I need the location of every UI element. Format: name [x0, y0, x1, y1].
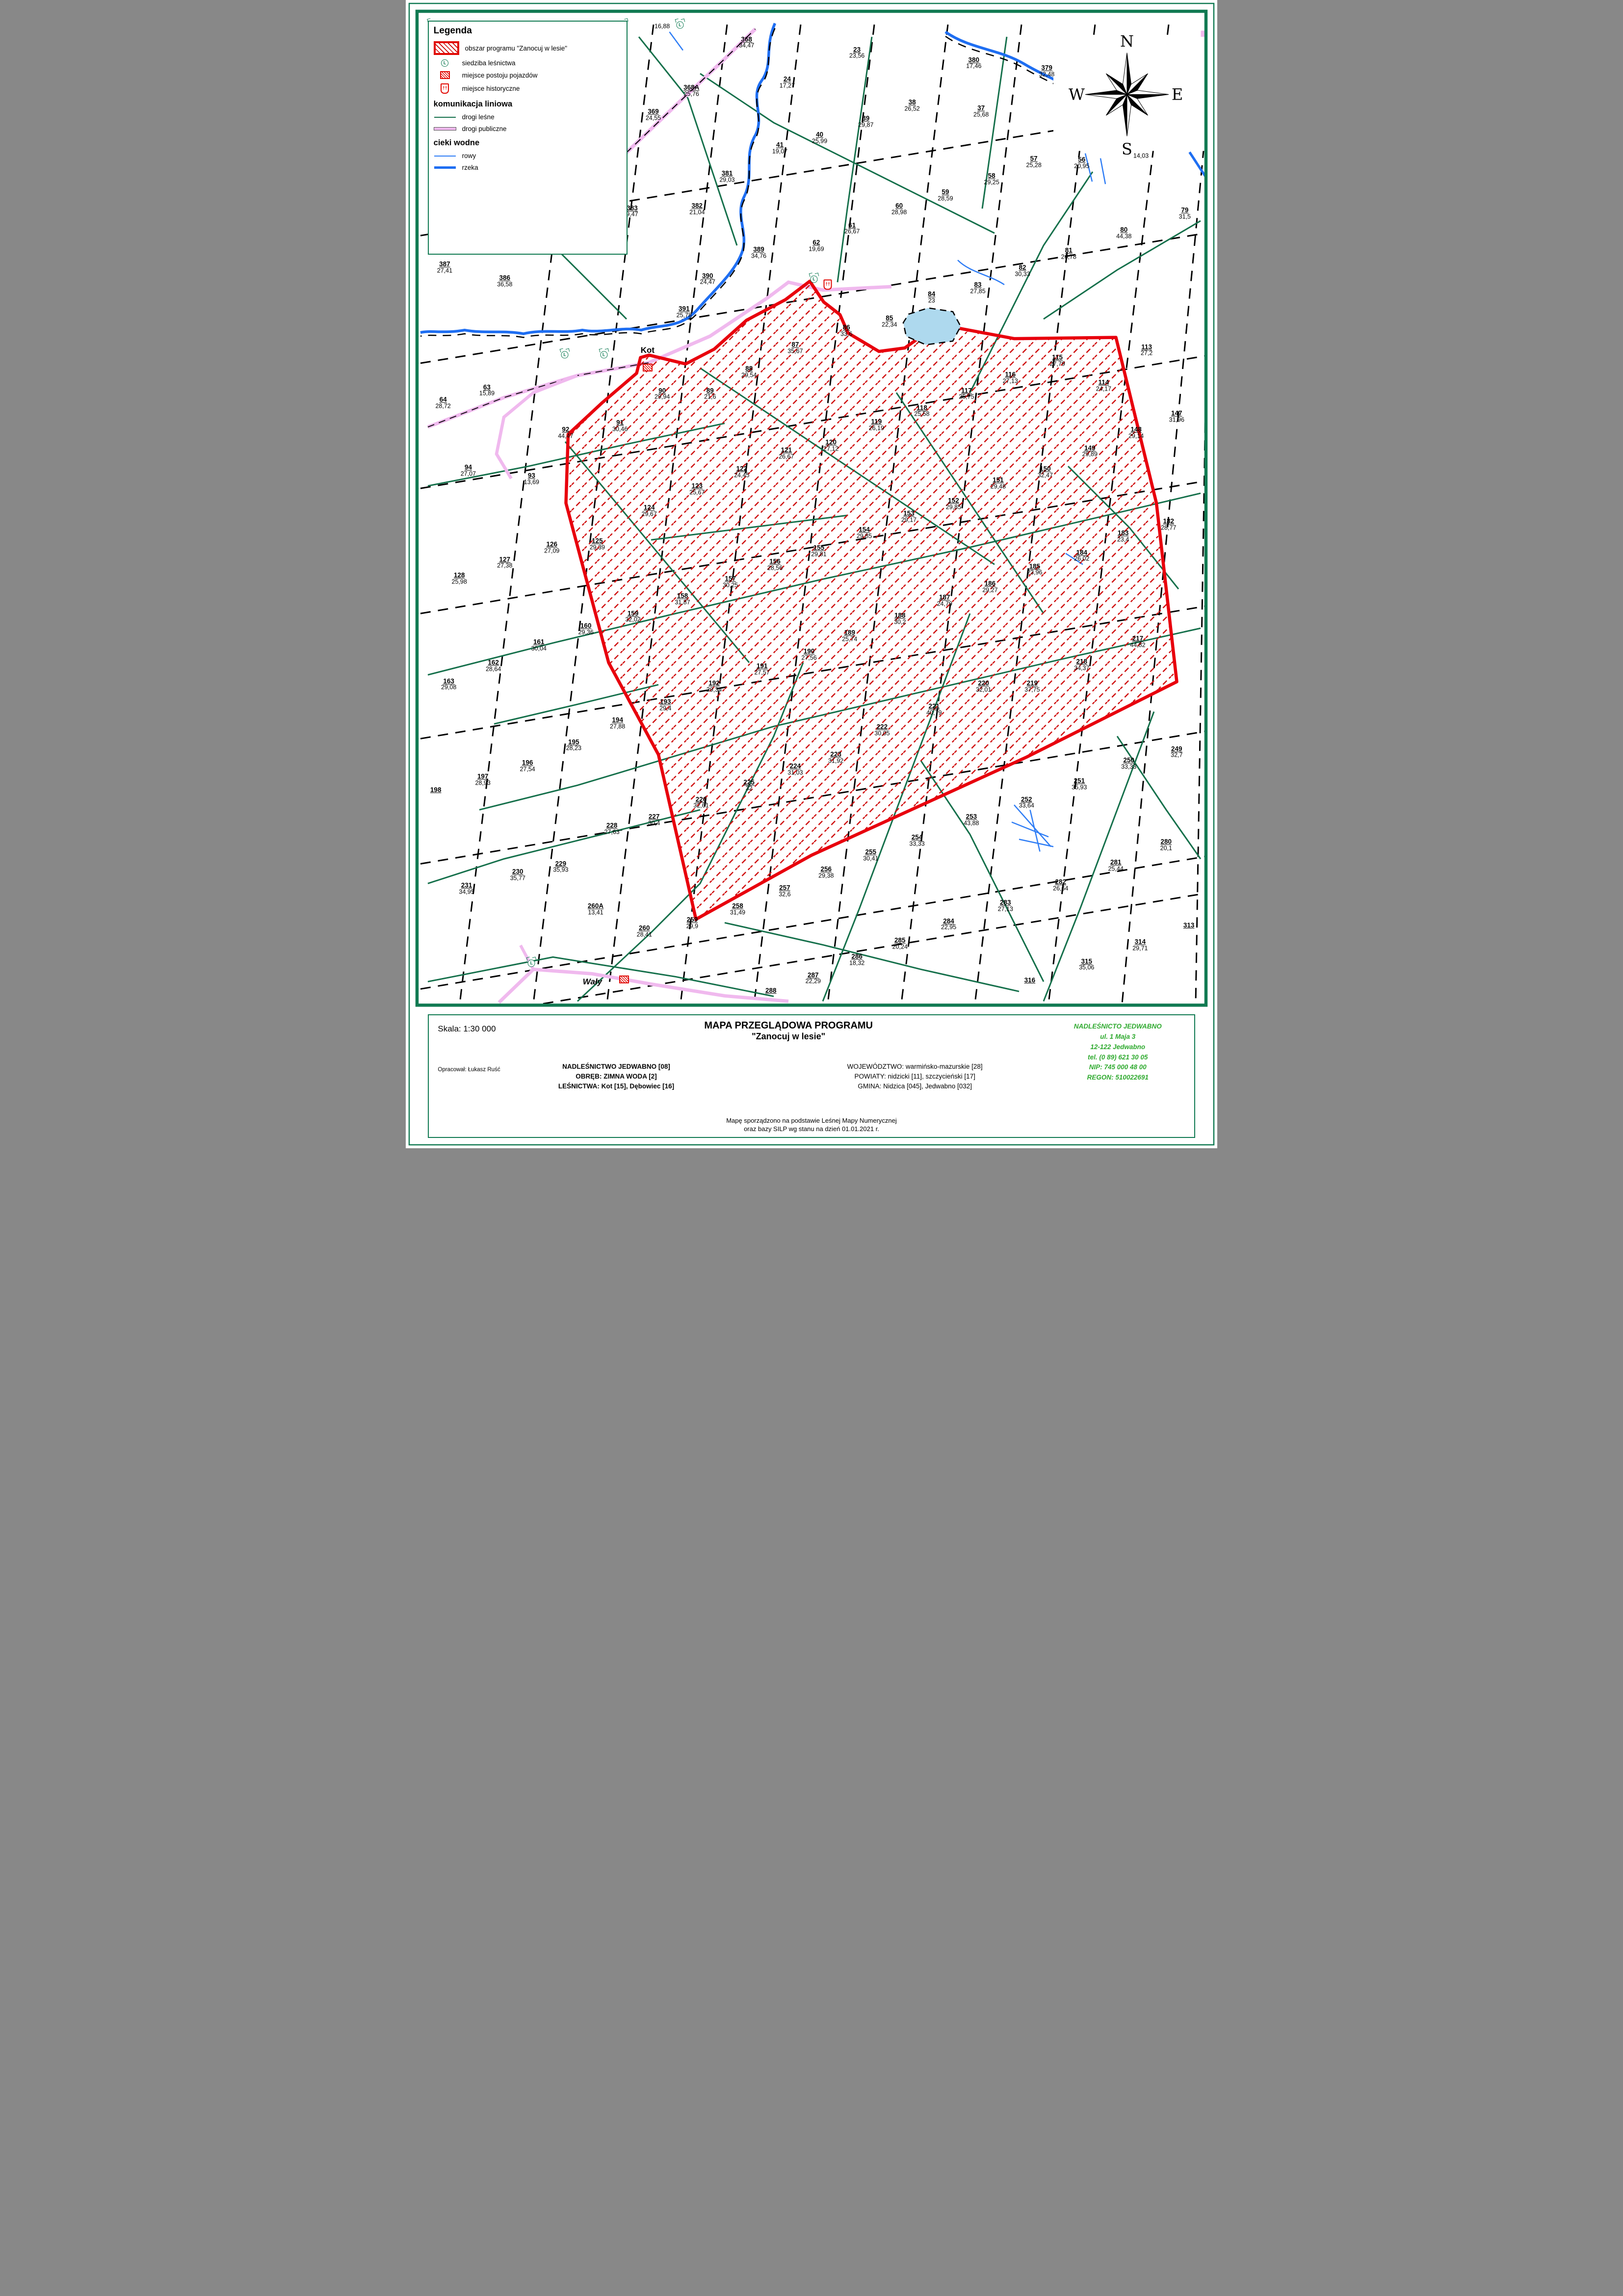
compartment-number: 154 [857, 526, 872, 533]
compartment-area: 32 [743, 786, 755, 792]
compartment-area: 25,58 [914, 411, 929, 418]
compartment-area: 29,67 [642, 511, 657, 518]
compartment-number: 227 [648, 813, 660, 820]
legend-item-ditches: rowy [434, 152, 622, 159]
compartment-area: 31,87 [675, 600, 690, 606]
compartment-area: 31,92 [828, 758, 843, 765]
compartment-label: 11725,75 [959, 387, 974, 400]
compartment-area: 34,76 [751, 253, 766, 259]
compartment-area: 34,37 [1074, 665, 1089, 671]
compartment-label: 18323,4 [1117, 530, 1129, 543]
compartment-area: 34,47 [739, 43, 754, 49]
compartment-label: 36834,47 [739, 36, 754, 49]
compartment-label: 198 [430, 787, 442, 793]
compartment-label: 37932,48 [1039, 65, 1054, 78]
compartment-number: 387 [437, 261, 452, 268]
compartment-area: 24,45 [734, 472, 749, 478]
compartment-label: 16130,04 [531, 639, 547, 652]
forestry-office-icon: L [600, 351, 607, 359]
compartment-number: 125 [590, 538, 605, 545]
compartment-label: 22935,93 [553, 860, 568, 873]
compartment-area: 29,17 [901, 517, 916, 524]
footer-panel: Skala: 1:30 000 Opracował: Łukasz Ruść M… [428, 1014, 1196, 1138]
compartment-area: 32,7 [1171, 752, 1182, 759]
compartment-number: 116 [1003, 371, 1018, 378]
compartment-area: 23,56 [849, 53, 864, 59]
compartment-area: 27,54 [520, 766, 535, 772]
compartment-area: 32,02 [625, 617, 640, 623]
compartment-number: 259 [686, 917, 698, 924]
compartment-area: 25,67 [689, 489, 705, 496]
address-city: 12-122 Jedwabno [1049, 1042, 1187, 1053]
forestry-office-icon: L [677, 22, 684, 29]
compartment-number: 250 [1121, 757, 1136, 764]
compartment-number: 124 [642, 504, 657, 511]
compartment-label: 8230,33 [1015, 264, 1030, 278]
compartment-area: 28,59 [938, 195, 953, 202]
source-note-line2: oraz bazy SILP wg stanu na dzień 01.01.2… [620, 1125, 1003, 1134]
compartment-area: 26,02 [1074, 556, 1089, 562]
compartment-area: 30,25 [723, 582, 738, 589]
compartment-number: 190 [801, 648, 816, 655]
compartment-number: 81 [1061, 247, 1076, 254]
compartment-number: 23 [849, 46, 864, 53]
compartment-number: 198 [430, 787, 442, 793]
compartment-label: 22532 [743, 779, 755, 792]
compartment-label: 2323,56 [849, 46, 864, 59]
compartment-area: 28,72 [435, 403, 450, 410]
compartment-label: 12727,38 [497, 556, 512, 569]
forestries-line: LEŚNICTWA: Kot [15], Dębowiec [16] [490, 1082, 743, 1091]
compartment-area: 23 [928, 298, 935, 304]
compartment-area: 15,89 [479, 391, 495, 397]
compartment-area: 27,12 [823, 446, 838, 452]
compartment-area: 22,34 [882, 322, 897, 328]
compartment-number: 84 [928, 291, 935, 298]
compartment-label: 12627,09 [544, 541, 559, 554]
compartment-number: 381 [719, 170, 734, 177]
compartment-area: 36,58 [497, 282, 512, 288]
compartment-area: 13,41 [588, 910, 603, 916]
compartment-number: 249 [1171, 745, 1182, 752]
river-swatch [434, 166, 456, 169]
compartment-area: 25,78 [677, 313, 692, 319]
compartment-area: 27,09 [544, 548, 559, 554]
compartment-area: 24,55 [646, 115, 661, 122]
compartment-area: 30,4 [648, 820, 660, 826]
compartment-area: 23,4 [1117, 536, 1129, 543]
compartment-area: 28,77 [1161, 525, 1176, 531]
compartment-area: 20,95 [1074, 163, 1089, 170]
compartment-label: 11627,13 [1003, 371, 1018, 385]
compartment-area: 26,67 [844, 229, 860, 235]
compartment-label: 28520,24 [892, 937, 908, 950]
compartment-number: 92 [558, 426, 573, 433]
compartment-label: 8735,67 [787, 342, 803, 355]
compartment-number: 260 [637, 924, 652, 931]
compartment-area: 37,75 [1024, 687, 1040, 693]
address-block: NADLEŚNICTO JEDWABNO ul. 1 Maja 3 12-122… [1049, 1022, 1187, 1083]
compartment-number: 128 [452, 572, 467, 579]
compartment-label: 19728,93 [475, 773, 490, 787]
address-name: NADLEŚNICTO JEDWABNO [1049, 1022, 1187, 1032]
compartment-number: 86 [840, 324, 852, 331]
compartment-label: 368A25,76 [683, 84, 699, 98]
compartment-number: 88 [741, 366, 757, 372]
compartment-area: 24,79 [937, 601, 952, 607]
compartment-label: 6219,69 [809, 239, 824, 252]
compartment-area: 33,64 [1019, 803, 1034, 809]
compartment-number: 121 [779, 447, 794, 454]
compartment-area: 26,78 [1061, 254, 1076, 261]
compartment-area: 30,41 [863, 856, 878, 862]
compartment-area: 30,2 [894, 619, 906, 626]
compartment-area: 25,44 [1108, 866, 1124, 872]
compartment-number: 184 [1074, 549, 1089, 556]
compartment-area: 35,93 [553, 867, 568, 873]
precinct-line: OBRĘB: ZIMNA WODA [2] [490, 1072, 743, 1082]
compartment-number: 117 [959, 387, 974, 394]
legend-item-public-roads: drogi publiczne [434, 125, 622, 132]
legend-item-parking: miejsce postoju pojazdów [434, 71, 622, 79]
compartment-area: 27,57 [754, 670, 769, 676]
compartment-area: 20,1 [1160, 845, 1172, 852]
compartment-label: 25530,41 [863, 849, 878, 862]
compartment-number: 150 [1038, 465, 1053, 472]
compartment-area: 40,79 [926, 710, 942, 716]
compartment-area: 28,41 [637, 931, 652, 938]
compartment-label: 8829,54 [741, 366, 757, 379]
compartment-label: 9244,47 [558, 426, 573, 440]
compartment-area: 27,56 [801, 655, 816, 661]
compartment-area: 27,63 [604, 829, 619, 836]
compartment-area: 9,47 [626, 211, 638, 218]
compartment-label: 25433,33 [909, 834, 924, 847]
compartment-label: 8126,78 [1061, 247, 1076, 261]
compartment-area: 25,99 [812, 138, 827, 144]
compartment-number: 56 [1074, 157, 1089, 163]
compartment-label: 15129,48 [991, 477, 1006, 490]
compartment-number: 220 [976, 680, 991, 687]
compartment-area: 20,24 [892, 944, 908, 950]
compartment-number: 389 [751, 246, 766, 253]
compartment-label: 8522,34 [882, 315, 897, 328]
compartment-number: 251 [1072, 778, 1087, 785]
compartment-label: 316 [1024, 977, 1036, 984]
compartment-number: 79 [1179, 207, 1191, 214]
compartment-number: 383 [626, 205, 638, 211]
compartment-label: 15730,25 [723, 576, 738, 589]
compartment-area: 32,61 [693, 803, 708, 809]
compartment-label: 16,88 [654, 23, 670, 29]
compartment-number: 187 [937, 594, 952, 601]
compartment-number: 93 [524, 473, 539, 479]
compartment-label: 18523,96 [1027, 563, 1042, 576]
compartment-area: 29,81 [811, 552, 826, 558]
compartment-area: 30,33 [1015, 271, 1030, 278]
compartment-area: 32,01 [976, 687, 991, 693]
compartment-number: 147 [1169, 410, 1184, 417]
counties-line: POWIATY: nidzicki [11], szczycieński [17… [788, 1072, 1041, 1082]
compartment-label: 12224,45 [734, 465, 749, 478]
compartment-label: 38017,46 [966, 56, 981, 70]
compartment-area: 29,9 [686, 924, 698, 930]
compartment-number: 223 [828, 751, 843, 758]
legend-item-lesnictwo: L siedziba leśnictwa [434, 59, 622, 67]
compartment-number: 94 [461, 464, 476, 471]
compartment-number: 195 [566, 739, 581, 745]
compartment-label: 12825,98 [452, 572, 467, 585]
compartment-number: 157 [723, 576, 738, 582]
compartment-number: 91 [612, 420, 628, 426]
compartment-area: 30,05 [874, 731, 890, 737]
legend-section-water: cieki wodne [434, 138, 622, 148]
compartment-label: 11926,19 [869, 419, 884, 432]
compartment-area: 34,95 [459, 889, 474, 896]
compartment-number: 224 [787, 763, 803, 770]
parking-icon [643, 364, 653, 371]
compartment-label: 15329,17 [901, 510, 916, 524]
compartment-label: 8423 [928, 291, 935, 304]
compartment-label: 14,03 [1133, 153, 1149, 159]
compartment-label: 22331,92 [828, 751, 843, 765]
compartment-label: 5620,95 [1074, 157, 1089, 170]
compartment-label: 24932,7 [1171, 745, 1182, 759]
address-nip: NIP: 745 000 48 00 [1049, 1062, 1187, 1073]
compartment-area: 21,04 [689, 209, 705, 215]
compartment-label: 22730,4 [648, 813, 660, 826]
compartment-number: 314 [1132, 939, 1148, 946]
compartment-number: 192 [707, 680, 722, 687]
compartment-label: 6428,72 [435, 396, 450, 410]
compartment-area: 27,2 [1141, 350, 1152, 357]
compartment-area: 23,96 [1027, 570, 1042, 576]
compartment-label: 11327,2 [1141, 343, 1152, 357]
compartment-area: 29,39 [590, 545, 605, 551]
compartment-area: 29,36 [578, 630, 594, 636]
compartment-area: 27,13 [998, 906, 1013, 913]
compartment-number: 90 [654, 387, 670, 394]
compartment-area: 29,25 [984, 180, 999, 186]
compartment-label: 22431,03 [787, 763, 803, 776]
compartment-label: 31535,06 [1079, 958, 1094, 971]
compartment-area: 31,03 [787, 769, 803, 776]
compartment-number: 379 [1039, 65, 1054, 72]
compartment-number: 221 [926, 703, 942, 710]
compartment-label: 6028,98 [891, 203, 907, 216]
compartment-label: 31429,71 [1132, 939, 1148, 952]
compartment-number: 60 [891, 203, 907, 210]
compartment-area: 25,75 [959, 394, 974, 400]
compartment-number: 380 [966, 56, 981, 63]
compartment-label: 38636,58 [497, 275, 512, 288]
compartment-number: 127 [497, 556, 512, 563]
compartment-number: 57 [1026, 156, 1042, 162]
compartment-label: 313 [1183, 922, 1195, 929]
compartment-label: 18629,27 [982, 580, 997, 593]
compartment-number: 62 [809, 239, 824, 246]
compartment-label: 16228,64 [486, 660, 501, 673]
scale-text: Skala: 1:30 000 [438, 1024, 496, 1034]
compartment-number: 280 [1160, 839, 1172, 845]
compartment-number: 152 [946, 498, 961, 504]
compartment-number: 123 [689, 483, 705, 490]
compartment-label: 23134,95 [459, 882, 474, 896]
legend-item-historic: †† miejsce historyczne [434, 83, 622, 94]
compartment-number: 153 [901, 510, 916, 517]
compartment-label: 18426,02 [1074, 549, 1089, 562]
compartment-number: 162 [486, 660, 501, 666]
compartment-number: 183 [1117, 530, 1129, 537]
compartment-number: 159 [625, 610, 640, 617]
compartment-area: 29,85 [946, 504, 961, 511]
district-line: NADLEŚNICTWO JEDWABNO [08] [490, 1062, 743, 1072]
compartment-number: 80 [1116, 227, 1131, 234]
compartment-label: 12325,67 [689, 483, 705, 496]
compartment-number: 158 [675, 593, 690, 600]
compartment-area: 29,85 [857, 533, 872, 539]
compartment-area: 31,96 [1169, 417, 1184, 423]
legend-title: Legenda [434, 26, 622, 36]
compartment-area: 44,47 [558, 433, 573, 440]
compartment-label: 9029,94 [654, 387, 670, 400]
compartment-area: 17,46 [966, 63, 981, 70]
compartment-number: 369 [646, 108, 661, 115]
compartment-number: 38 [904, 99, 919, 106]
compartment-number: 191 [754, 663, 769, 670]
compartment-label: 36924,55 [646, 108, 661, 122]
compartment-area: 35,77 [510, 875, 525, 882]
compartment-label: 38727,41 [437, 261, 452, 274]
compartment-number: 114 [1096, 379, 1111, 386]
compartment-number: 229 [553, 860, 568, 867]
map-title-line1: MAPA PRZEGLĄDOWA PROGRAMU [612, 1020, 965, 1031]
compartment-number: 218 [1074, 659, 1089, 665]
compartment-area: 22,95 [941, 924, 956, 931]
compartment-area: 13,69 [524, 479, 539, 485]
compartment-area: 26,52 [904, 106, 919, 112]
compartment-label: 8921,6 [704, 387, 716, 400]
compartment-number: 40 [812, 132, 827, 138]
district-block: NADLEŚNICTWO JEDWABNO [08] OBRĘB: ZIMNA … [490, 1062, 743, 1092]
compartment-number: 122 [734, 465, 749, 472]
compartment-number: 58 [984, 173, 999, 180]
compartment-label: 25343,88 [964, 813, 979, 826]
compartment-area: 29,03 [719, 177, 734, 184]
map-title: MAPA PRZEGLĄDOWA PROGRAMU "Zanocuj w les… [612, 1020, 965, 1042]
compartment-label: 28722,29 [806, 972, 821, 985]
compartment-area: 25,98 [452, 579, 467, 585]
compartment-number: 286 [849, 953, 864, 960]
compartment-label: 28618,32 [849, 953, 864, 967]
forestry-office-icon: L [561, 351, 569, 359]
compartment-area: 22,29 [806, 978, 821, 985]
compartment-number: 368 [739, 36, 754, 43]
forest-road-swatch [434, 117, 456, 118]
public-road-swatch [434, 128, 456, 130]
compartment-area: 43,88 [964, 820, 979, 826]
compartment-label: 2417,27 [780, 76, 795, 89]
compartment-label: 28422,95 [941, 918, 956, 931]
compartment-area: 29,71 [1132, 945, 1148, 951]
compartment-number: 258 [730, 903, 745, 910]
compartment-label: 22230,05 [874, 724, 890, 737]
compartment-area: 26,67 [779, 454, 794, 460]
compartment-number: 313 [1183, 922, 1195, 929]
compartment-label: 11424,17 [1096, 379, 1111, 393]
forestry-office-icon: L [441, 59, 448, 67]
compartment-number: 151 [991, 477, 1006, 484]
compartment-number: 160 [578, 623, 594, 630]
compartment-number: 253 [964, 813, 979, 820]
compartment-area: 30,04 [531, 646, 547, 652]
compartment-number: 254 [909, 834, 924, 841]
compartment-number: 118 [914, 404, 929, 411]
compartment-number: 231 [459, 882, 474, 889]
compartment-number: 24 [780, 76, 795, 83]
compartment-area: 27,88 [610, 724, 625, 730]
compartment-label: 15628,56 [767, 558, 783, 572]
compartment-label: 15229,85 [946, 498, 961, 511]
compartment-number: 282 [1053, 879, 1068, 886]
compartment-area: 31,49 [730, 910, 745, 916]
compartment-label: 38129,03 [719, 170, 734, 184]
compartment-label: 14731,96 [1169, 410, 1184, 423]
compartment-label: 8044,38 [1116, 227, 1131, 240]
ditch-swatch [434, 156, 456, 157]
legend-item-program-area: obszar programu "Zanocuj w lesie" [434, 41, 622, 55]
compartment-number: 115 [1050, 354, 1065, 361]
compartment-label: 11527,79 [1050, 354, 1065, 367]
compartment-number: 196 [520, 760, 535, 766]
compartment-number: 37 [973, 105, 989, 112]
compartment-number: 252 [1019, 796, 1034, 803]
compartment-number: 386 [497, 275, 512, 282]
compartment-label: 15831,87 [675, 593, 690, 606]
compartment-label: 11825,58 [914, 404, 929, 418]
compartment-area: 27,38 [497, 563, 512, 569]
compartment-number: 126 [544, 541, 559, 548]
compartment-label: 28226,64 [1053, 879, 1068, 892]
voivodeship-line: WOJEWÓDZTWO: warmińsko-mazurskie [28] [788, 1062, 1041, 1072]
compartment-area: 28,98 [891, 209, 907, 215]
compartment-area: 27,41 [437, 268, 452, 274]
compartment-area: 29,94 [654, 394, 670, 400]
compartment-area: 28,64 [486, 666, 501, 673]
compartment-label: 4025,99 [812, 132, 827, 145]
compartment-label: 3826,52 [904, 99, 919, 112]
compartment-number: 219 [1024, 680, 1040, 687]
compartment-area: 17,27 [780, 83, 795, 89]
compartment-label: 14829,14 [1128, 426, 1144, 440]
compartment-label: 3839,47 [626, 205, 638, 218]
compartment-number: 85 [882, 315, 897, 322]
legend-item-river: rzeka [434, 164, 622, 171]
compartment-label: 6315,89 [479, 384, 495, 397]
compartment-number: 226 [693, 796, 708, 803]
compartment-label: 5725,28 [1026, 156, 1042, 169]
compartment-label: 25831,49 [730, 903, 745, 916]
compartment-number: 368A [683, 84, 699, 91]
compartment-label: 22140,79 [926, 703, 942, 716]
compartment-number: 285 [892, 937, 908, 944]
compartment-label: 3725,68 [973, 105, 989, 118]
compartment-area: 18,32 [849, 960, 864, 967]
compartment-area: 31,5 [1179, 214, 1191, 220]
compartment-number: 188 [894, 612, 906, 619]
compartment-number: 189 [842, 630, 857, 636]
compartment-area: 21,6 [704, 394, 716, 400]
